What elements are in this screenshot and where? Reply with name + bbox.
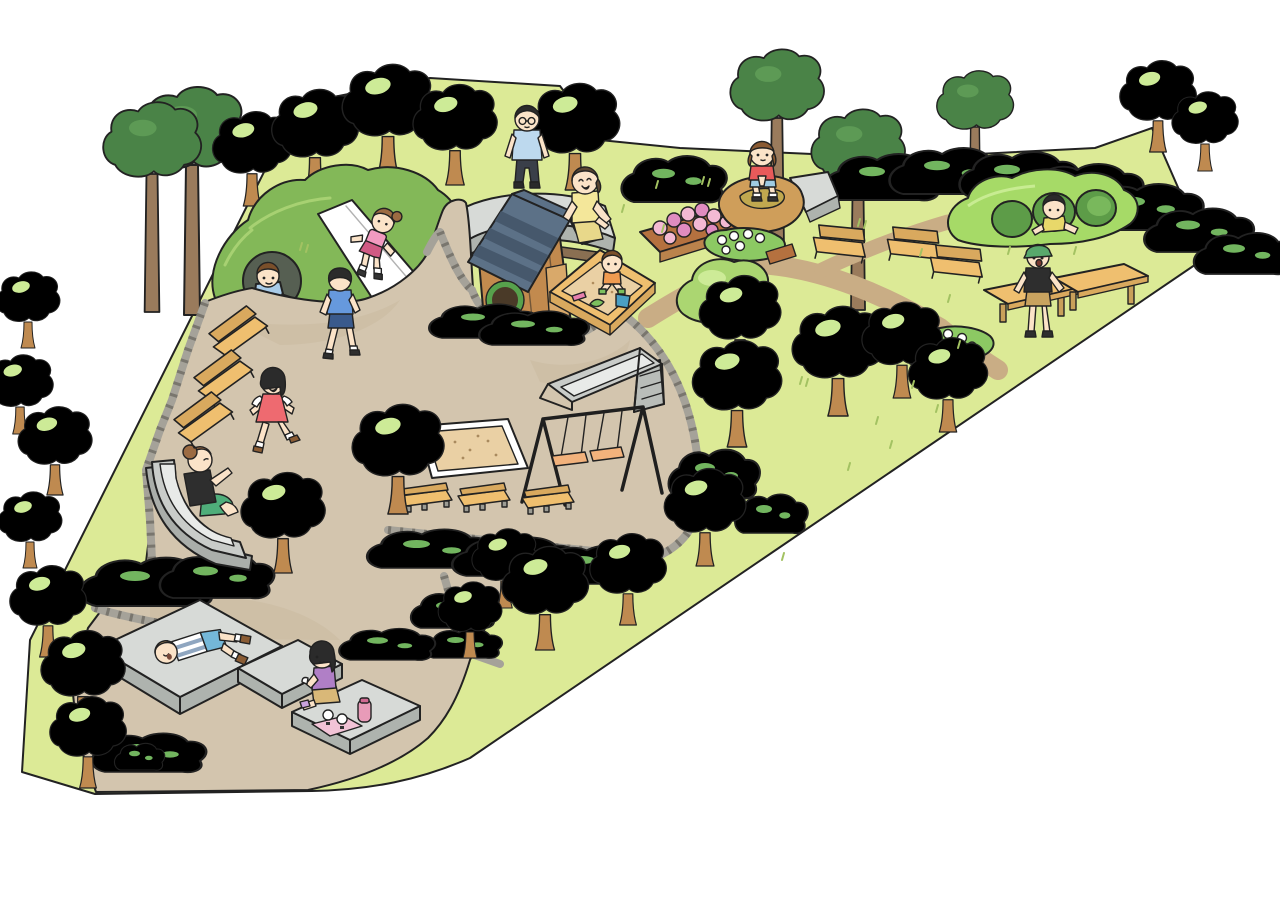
tree [1172,92,1238,171]
park-illustration [0,0,1280,905]
park-map-canvas [0,0,1280,905]
